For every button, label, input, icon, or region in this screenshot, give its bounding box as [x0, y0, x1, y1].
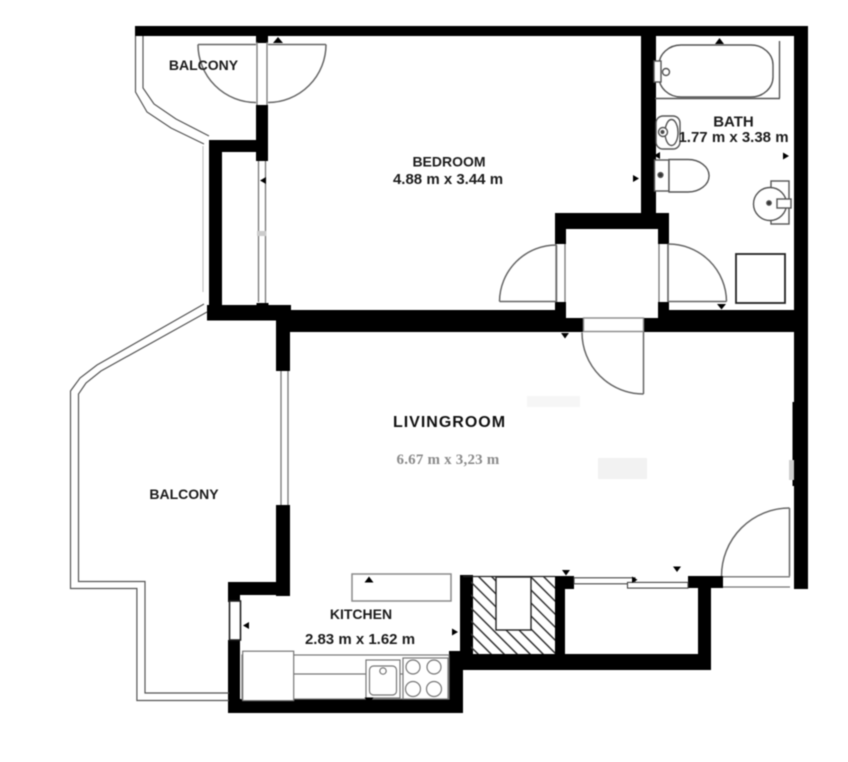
svg-text:BATH: BATH	[713, 114, 754, 131]
svg-text:BALCONY: BALCONY	[149, 486, 219, 502]
svg-text:1.77 m x 3.38 m: 1.77 m x 3.38 m	[678, 129, 788, 146]
svg-text:4.88 m x 3.44 m: 4.88 m x 3.44 m	[393, 171, 503, 188]
svg-text:BALCONY: BALCONY	[169, 57, 239, 73]
svg-text:2.83 m x 1.62 m: 2.83 m x 1.62 m	[305, 631, 415, 648]
svg-text:LIVINGROOM: LIVINGROOM	[393, 414, 506, 431]
svg-text:KITCHEN: KITCHEN	[330, 606, 392, 622]
svg-text:6.67 m x 3,23 m: 6.67 m x 3,23 m	[397, 452, 500, 468]
svg-text:BEDROOM: BEDROOM	[412, 154, 485, 170]
